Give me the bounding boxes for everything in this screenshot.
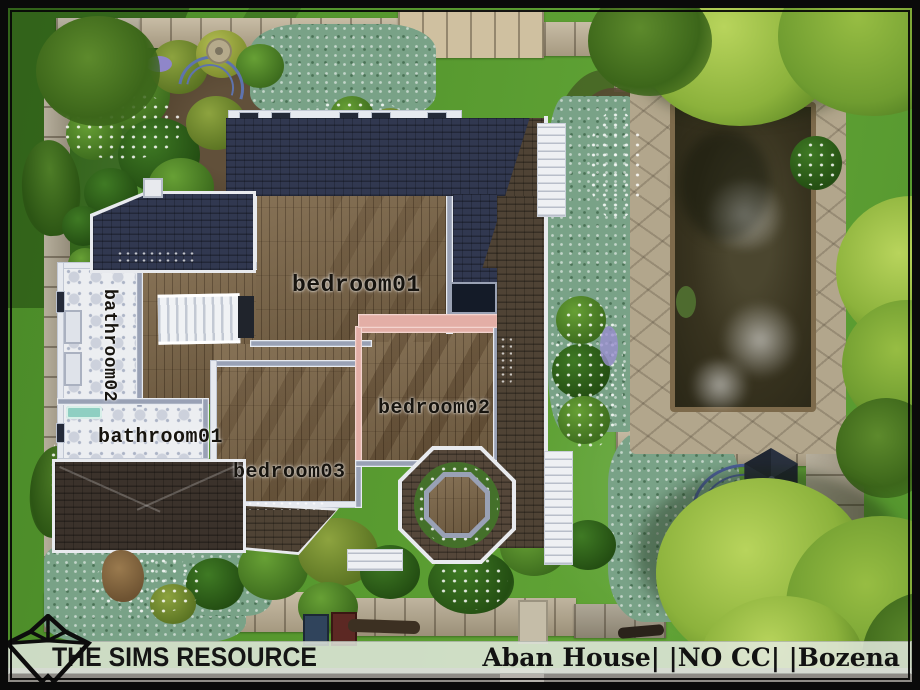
room-label-bedroom02: bedroom02 — [378, 397, 491, 420]
wall — [57, 398, 209, 405]
wall-pink-band — [358, 314, 498, 328]
room-label-bedroom03: bedroom03 — [233, 461, 346, 484]
sunlight-overlay — [359, 326, 497, 466]
chimney — [143, 178, 163, 198]
side-walkway — [545, 452, 572, 564]
creation-title-text: Aban House| |NO CC| |Bozena — [482, 643, 900, 672]
room-label-bathroom01: bathroom01 — [98, 426, 223, 449]
wall-pink — [355, 326, 362, 466]
pond-shadow — [680, 130, 770, 240]
bear-statue — [102, 550, 144, 602]
lavender-flowers — [600, 326, 618, 366]
roof-main-limb — [453, 194, 497, 286]
wall — [250, 340, 372, 347]
window — [57, 424, 64, 442]
tree-canopy — [36, 16, 160, 126]
flower-dots — [438, 556, 508, 610]
room-label-bathroom02: bathroom02 — [99, 289, 119, 402]
porch-steps — [348, 550, 402, 570]
flower-dots — [588, 110, 644, 220]
fallen-log — [348, 619, 420, 635]
roof-planter — [246, 500, 326, 510]
pond-mist — [685, 360, 755, 410]
dormer-window — [64, 352, 82, 386]
bathtub — [66, 406, 102, 419]
tsr-diamond-icon — [4, 614, 92, 690]
dormer-window — [64, 310, 82, 344]
room-label-bedroom01: bedroom01 — [292, 272, 421, 298]
wall — [210, 360, 362, 367]
screenshot-root: bedroom01 bedroom02 bedroom03 bathroom01… — [0, 0, 920, 690]
flower-dots — [552, 300, 624, 450]
lily-pads — [676, 286, 696, 318]
stone-pillar — [518, 600, 548, 644]
millstone-hole — [215, 47, 223, 55]
watermark-banner: THE SIMS RESOURCE Aban House| |NO CC| |B… — [8, 641, 912, 674]
window — [57, 292, 64, 312]
roof-main — [226, 118, 546, 196]
skylight — [450, 282, 497, 314]
flower-dots — [794, 140, 838, 186]
staircase — [158, 293, 241, 344]
roof-planter — [116, 250, 194, 265]
turret-floor — [429, 477, 485, 533]
pergola-deck — [538, 124, 565, 216]
stairwell-void — [238, 296, 254, 338]
roof-planter — [499, 336, 512, 384]
wall — [136, 262, 143, 408]
